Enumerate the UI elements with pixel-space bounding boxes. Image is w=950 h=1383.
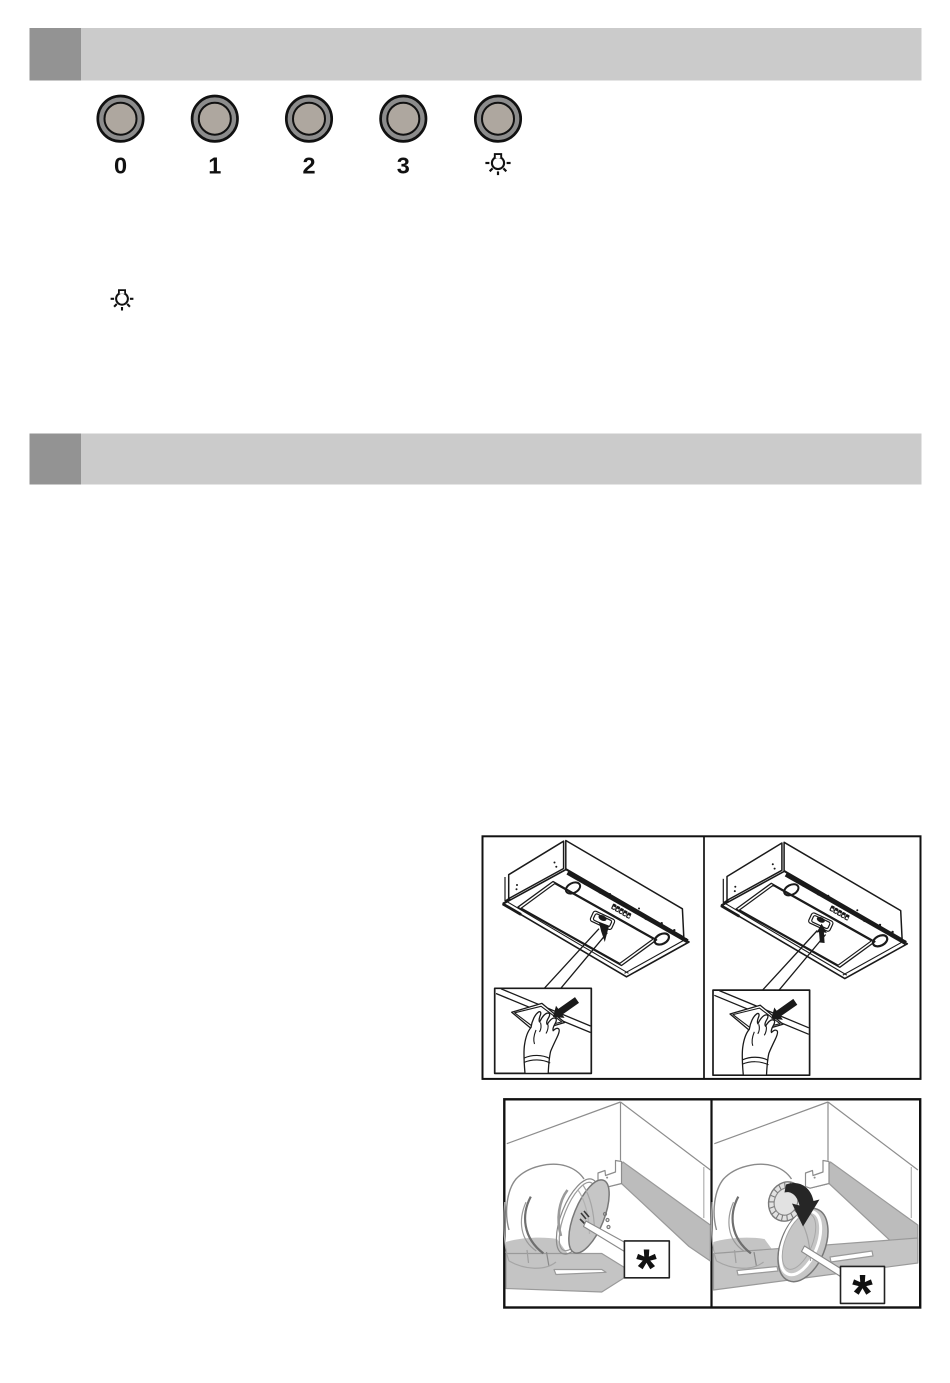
- svg-text:1: 1: [208, 153, 221, 179]
- svg-text:0: 0: [114, 153, 127, 179]
- svg-text:2: 2: [302, 153, 315, 179]
- svg-text:3: 3: [397, 153, 410, 179]
- svg-text:*: *: [852, 1265, 873, 1324]
- svg-text:*: *: [636, 1239, 657, 1298]
